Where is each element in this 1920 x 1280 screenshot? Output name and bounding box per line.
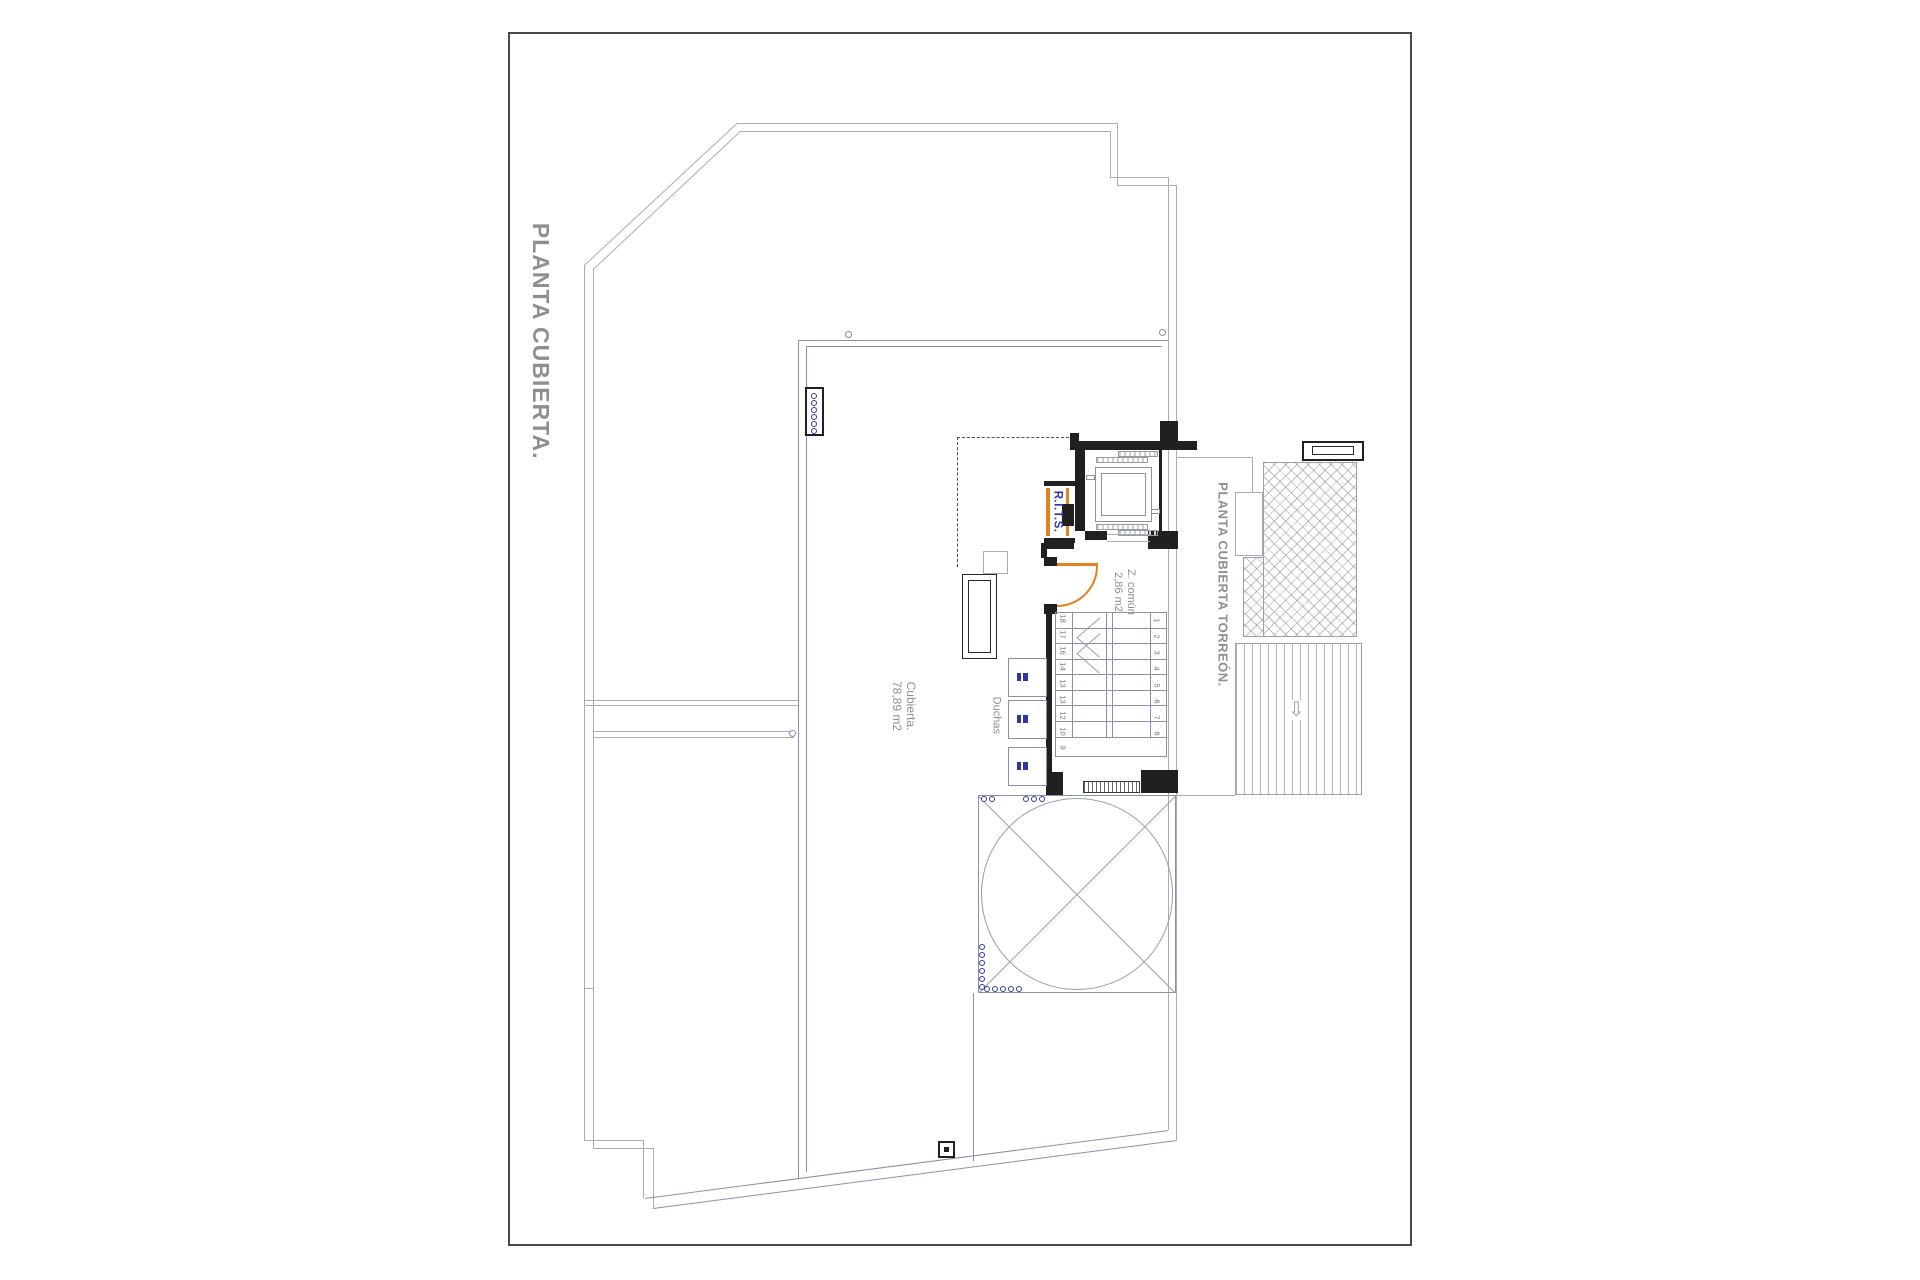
roof-drain-marker [1159, 329, 1166, 336]
torreon-notch [1235, 492, 1263, 556]
stair-number: 4 [1153, 662, 1162, 676]
terrace-name: Cubierta. [904, 682, 918, 731]
elevator-rail-bracket [1086, 475, 1095, 480]
stair-number: 14 [1059, 660, 1068, 674]
elevator-door-sill [1107, 534, 1150, 535]
sheet-border [508, 32, 1412, 1246]
stair-number: 8 [1153, 726, 1162, 740]
rits-equipment [1062, 504, 1074, 526]
stair-number: 2 [1153, 630, 1162, 644]
stair-number: 12 [1059, 708, 1068, 722]
terrace-area: 78,89 m2 [890, 681, 904, 731]
lower-terrace-edge [973, 993, 974, 1161]
shower-drain-icon [1017, 715, 1028, 723]
landing-grille [1083, 781, 1140, 793]
stair-number: 18 [1059, 612, 1068, 626]
stair-number: 16 [1059, 644, 1068, 658]
stair-number: 7 [1153, 710, 1162, 724]
elevator-door-sill [1107, 541, 1150, 542]
floor-plan-canvas: PLANTA CUBIERTA. [0, 0, 1920, 1280]
drawing-title: PLANTA CUBIERTA. [528, 181, 554, 501]
stair-number: 10 [1059, 724, 1068, 738]
stair-number: 1 [1153, 614, 1162, 628]
torreon-title: PLANTA CUBIERTA TORREÓN. [1215, 459, 1230, 709]
rooftop-box [983, 551, 1008, 574]
terrace-area-label: Cubierta. 78,89 m2 [887, 671, 917, 741]
stair-number: 9 [1059, 741, 1068, 755]
showers-label: Duchas [990, 690, 1003, 740]
stair-number: 17 [1059, 628, 1068, 642]
roof-drain-marker [845, 331, 852, 338]
elevator-rail-bracket [1151, 509, 1160, 514]
stair-numbers-left: 18171614131312109 [1056, 614, 1070, 752]
zone-area: 2,86 m2 [1112, 572, 1124, 612]
stair-number: 6 [1153, 694, 1162, 708]
torreon-paved-roof [1263, 462, 1357, 637]
stair-number: 13 [1059, 676, 1068, 690]
stair-number: 13 [1059, 692, 1068, 706]
roof-drain-marker [789, 730, 796, 737]
dashed-boundary [957, 437, 958, 567]
zone-name: Z. común [1125, 569, 1137, 615]
stair-numbers-right: 12345678 [1150, 616, 1164, 738]
stair-number: 3 [1153, 646, 1162, 660]
slope-arrow-icon: ⇩ [1288, 700, 1305, 720]
stair-number: 5 [1153, 678, 1162, 692]
shower-drain-icon [1017, 673, 1028, 681]
shower-drain-icon [1017, 762, 1028, 770]
rits-label: R.I.T.S. [1050, 488, 1063, 536]
torreon-paved-roof [1243, 557, 1264, 637]
dashed-boundary [957, 437, 1069, 438]
